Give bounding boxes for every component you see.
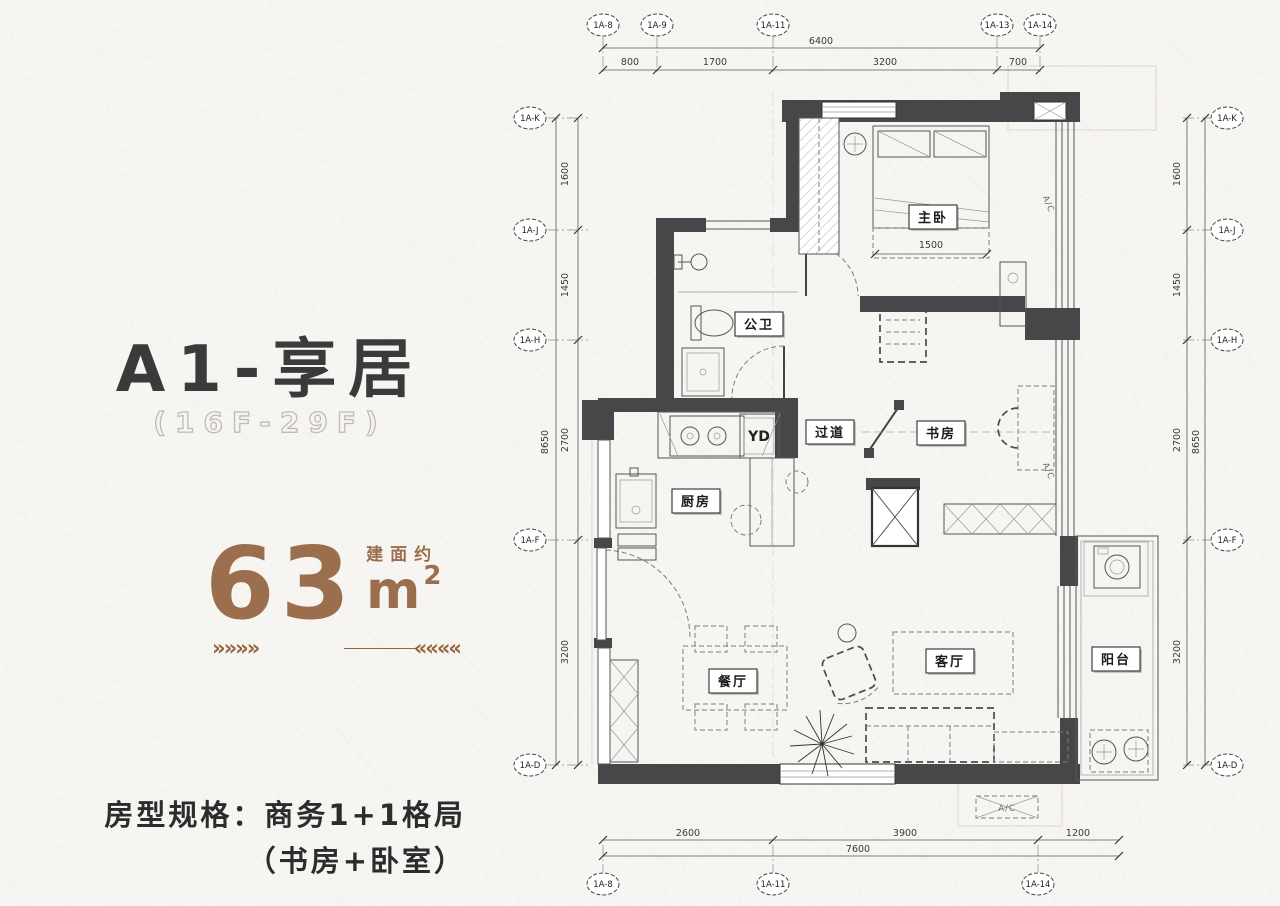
svg-text:1A-11: 1A-11 [761, 880, 786, 890]
axis-bubble-top-4: 1A-13 [981, 14, 1013, 36]
bathroom-door-swing [732, 346, 784, 398]
right-axis-grid: 1600 1450 2700 3200 8650 1A-K 1A-J 1A-H … [1172, 107, 1243, 776]
svg-text:1A-K: 1A-K [520, 114, 540, 124]
entry-door-swing [606, 550, 690, 638]
bottom-axis-grid: 2600 3900 1200 7600 1A-8 1A-11 1A-14 [587, 828, 1123, 895]
top-axis-grid: 6400 800 1700 3200 700 1A-8 1A-9 1A-11 1… [587, 14, 1056, 74]
room-labels: 主卧 公卫 厨房 过道 书房 餐厅 客厅 阳台 [672, 205, 1142, 695]
dim-bottom-seg1: 2600 [676, 828, 700, 839]
room-label-kitchen: 厨房 [672, 489, 722, 515]
dim-top-seg2: 1700 [703, 57, 727, 68]
svg-text:1A-J: 1A-J [521, 226, 538, 236]
ac-label: A/C [1040, 461, 1056, 481]
svg-text:1A-8: 1A-8 [593, 21, 613, 31]
svg-text:主卧: 主卧 [918, 210, 948, 226]
axis-bubble-bottom-3: 1A-14 [1022, 873, 1054, 895]
kitchen-sink [616, 474, 656, 528]
dim-left-seg2: 1450 [560, 273, 571, 297]
svg-text:过道: 过道 [815, 425, 845, 441]
study-cabinet [944, 504, 1056, 534]
room-label-study: 书房 [917, 421, 967, 447]
outdoor-ac-unit: A/C [976, 796, 1038, 818]
svg-text:1A-13: 1A-13 [985, 21, 1010, 31]
room-label-master-bedroom: 主卧 [909, 205, 959, 231]
dim-top-total: 6400 [809, 36, 833, 47]
dim-top-seg3: 3200 [873, 57, 897, 68]
dim-top-seg4: 700 [1009, 57, 1027, 68]
axis-bubble-right-4: 1A-F [1211, 529, 1243, 551]
desk-chair [998, 408, 1018, 448]
left-axis-grid: 8650 1600 1450 2700 3200 1A-K 1A-J 1A-H … [514, 107, 588, 776]
svg-text:餐厅: 餐厅 [717, 674, 748, 690]
living-furniture [610, 624, 1068, 776]
svg-text:1A-K: 1A-K [1217, 114, 1237, 124]
bed-dimension: 1500 [871, 240, 991, 258]
svg-text:A/C: A/C [998, 804, 1016, 814]
shower-head-icon [691, 254, 707, 270]
dim-left-seg4: 3200 [560, 640, 571, 664]
armchair [820, 644, 877, 701]
svg-text:1A-H: 1A-H [1217, 336, 1238, 346]
dim-right-seg4: 3200 [1172, 640, 1183, 664]
axis-bubble-right-3: 1A-H [1211, 329, 1243, 351]
study-door-leaf [868, 408, 898, 452]
ac-label: A/C [1040, 194, 1056, 214]
room-label-corridor: 过道 [806, 420, 856, 446]
dim-bottom-seg2: 3900 [893, 828, 917, 839]
axis-bubble-top-5: 1A-14 [1024, 14, 1056, 36]
dim-left-seg3: 2700 [560, 428, 571, 452]
svg-text:1A-H: 1A-H [520, 336, 541, 346]
dim-bottom-total: 7600 [846, 844, 870, 855]
shower-tray [682, 348, 724, 396]
room-label-bathroom: 公卫 [735, 312, 785, 338]
floor-plan-drawing: 6400 800 1700 3200 700 1A-8 1A-9 1A-11 1… [0, 0, 1280, 906]
svg-text:1A-F: 1A-F [521, 536, 540, 546]
svg-text:书房: 书房 [926, 426, 956, 442]
yd-fixture: YD [740, 414, 778, 458]
axis-bubble-right-2: 1A-J [1211, 219, 1243, 241]
axis-bubble-bottom-1: 1A-8 [587, 873, 619, 895]
axis-bubble-left-2: 1A-J [514, 219, 546, 241]
svg-text:1A-14: 1A-14 [1028, 21, 1053, 31]
dim-bottom-seg3: 1200 [1066, 828, 1090, 839]
axis-bubble-top-2: 1A-9 [641, 14, 673, 36]
svg-text:1A-F: 1A-F [1218, 536, 1237, 546]
svg-text:1A-8: 1A-8 [593, 880, 613, 890]
room-label-dining: 餐厅 [709, 669, 759, 695]
svg-text:1A-14: 1A-14 [1026, 880, 1051, 890]
axis-bubble-bottom-2: 1A-11 [757, 873, 789, 895]
window-bands [1056, 122, 1158, 780]
svg-text:公卫: 公卫 [744, 318, 774, 333]
svg-text:客厅: 客厅 [935, 654, 965, 670]
room-label-living: 客厅 [926, 649, 976, 675]
study-closet [880, 308, 926, 362]
dim-top-seg1: 800 [621, 57, 639, 68]
svg-text:厨房: 厨房 [681, 494, 711, 510]
dresser [1000, 262, 1026, 326]
svg-text:1A-D: 1A-D [520, 761, 541, 771]
axis-bubble-left-4: 1A-F [514, 529, 546, 551]
svg-text:1A-D: 1A-D [1217, 761, 1238, 771]
svg-text:1A-11: 1A-11 [761, 21, 786, 31]
axis-bubble-right-1: 1A-K [1211, 107, 1243, 129]
axis-bubble-left-3: 1A-H [514, 329, 546, 351]
dim-right-total: 8650 [1191, 430, 1202, 454]
dim-left-seg1: 1600 [560, 162, 571, 186]
svg-text:1500: 1500 [919, 240, 943, 251]
dim-left-total: 8650 [540, 430, 551, 454]
side-table [838, 624, 856, 642]
room-label-balcony: 阳台 [1092, 647, 1142, 673]
sofa [866, 708, 994, 762]
dim-right-seg1: 1600 [1172, 162, 1183, 186]
property-lines [592, 66, 1156, 826]
axis-bubble-top-1: 1A-8 [587, 14, 619, 36]
sofa-chaise [994, 732, 1068, 762]
entry-door-leaf [597, 548, 606, 640]
axis-bubble-left-5: 1A-D [514, 754, 546, 776]
svg-text:阳台: 阳台 [1101, 652, 1131, 668]
axis-bubble-left-1: 1A-K [514, 107, 546, 129]
desk [1018, 386, 1054, 470]
dim-right-seg3: 2700 [1172, 428, 1183, 452]
axis-bubble-top-3: 1A-11 [757, 14, 789, 36]
svg-text:1A-J: 1A-J [1218, 226, 1235, 236]
axis-bubble-right-5: 1A-D [1211, 754, 1243, 776]
svg-text:YD: YD [747, 429, 770, 445]
svg-text:1A-9: 1A-9 [647, 21, 667, 31]
dim-right-seg2: 1450 [1172, 273, 1183, 297]
washing-machine [1094, 546, 1140, 588]
